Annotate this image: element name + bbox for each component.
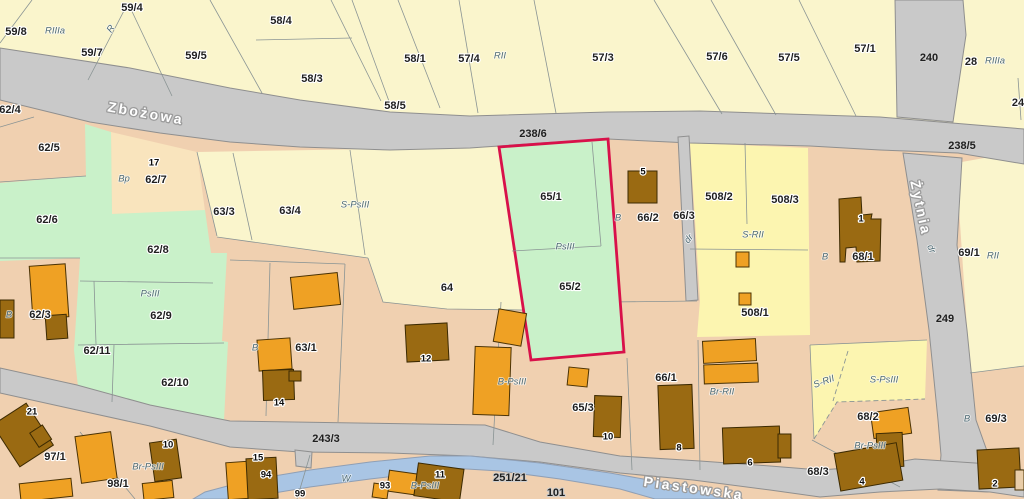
building bbox=[257, 338, 292, 371]
parcel-number: 58/3 bbox=[301, 73, 322, 85]
parcel-number: 64 bbox=[441, 282, 454, 294]
parcel-number: 62/9 bbox=[150, 310, 171, 322]
building-annex bbox=[1015, 470, 1024, 490]
building bbox=[658, 384, 694, 449]
parcel-number: 62/6 bbox=[36, 214, 57, 226]
parcel-number: 62/7 bbox=[145, 174, 166, 186]
soil-class: B bbox=[964, 414, 971, 425]
building-number: 6 bbox=[747, 458, 752, 469]
soil-class: S-PsIII bbox=[341, 200, 370, 211]
parcel-number: 24 bbox=[1012, 97, 1024, 109]
parcel-number: 98/1 bbox=[107, 478, 128, 490]
parcel-number: 62/10 bbox=[161, 377, 189, 389]
building bbox=[290, 273, 340, 310]
building-number: 99 bbox=[295, 489, 306, 499]
building bbox=[736, 252, 749, 267]
parcel-number: 63/3 bbox=[213, 206, 234, 218]
building-number: 5 bbox=[640, 167, 646, 178]
parcel-number: 66/3 bbox=[673, 210, 694, 222]
parcel-number: 57/5 bbox=[778, 52, 799, 64]
road-parcel-number: 240 bbox=[920, 52, 938, 64]
building bbox=[704, 363, 759, 384]
soil-class: W bbox=[342, 474, 352, 485]
parcel-number: 508/2 bbox=[705, 191, 733, 203]
parcel-number: 59/5 bbox=[185, 50, 206, 62]
soil-class: B bbox=[615, 213, 622, 224]
parcel-number: 66/1 bbox=[655, 372, 676, 384]
building-number: 10 bbox=[603, 432, 614, 443]
parcel-number: 68/2 bbox=[857, 411, 878, 423]
parcel-number: 62/5 bbox=[38, 142, 59, 154]
building bbox=[739, 293, 751, 305]
building-number: 21 bbox=[27, 407, 38, 418]
parcel-number: 508/3 bbox=[771, 194, 799, 206]
soil-class: B bbox=[252, 343, 259, 354]
building-number: 8 bbox=[676, 443, 681, 454]
building-number: 93 bbox=[380, 481, 391, 492]
parcel-number: 69/3 bbox=[985, 413, 1006, 425]
road-parcel-number: 238/6 bbox=[519, 128, 547, 140]
parcel-number: 68/1 bbox=[852, 251, 873, 263]
parcel-number: 59/7 bbox=[81, 47, 102, 59]
building-number: 10 bbox=[163, 440, 174, 451]
road-parcel-number: 249 bbox=[936, 313, 954, 325]
soil-class: Bp bbox=[118, 174, 130, 185]
building-number: 15 bbox=[253, 453, 264, 464]
parcel-number: 97/1 bbox=[44, 451, 65, 463]
parcel-number: 68/3 bbox=[807, 466, 828, 478]
building-number: 1 bbox=[858, 214, 864, 225]
building bbox=[142, 480, 174, 499]
soil-class: Br-PsIII bbox=[132, 462, 164, 473]
soil-class: S-RII bbox=[742, 230, 764, 241]
road-parcel-number: 243/3 bbox=[312, 433, 340, 445]
building-number: 12 bbox=[421, 354, 432, 365]
road-spur bbox=[295, 450, 312, 468]
parcel-number: 57/3 bbox=[592, 52, 613, 64]
parcel-number: 58/5 bbox=[384, 100, 405, 112]
building bbox=[778, 434, 791, 458]
parcel-number: 58/4 bbox=[270, 15, 292, 27]
road-parcel-number: 238/5 bbox=[948, 140, 976, 152]
parcel-number: 58/1 bbox=[404, 53, 425, 65]
parcel-number: 59/4 bbox=[121, 2, 143, 14]
road-parcel-number: 101 bbox=[547, 487, 565, 499]
soil-class: Br-PsIII bbox=[854, 441, 886, 452]
building-number: 11 bbox=[435, 470, 446, 481]
soil-class: Br-RII bbox=[710, 387, 735, 398]
soil-class: RII bbox=[494, 51, 507, 62]
soil-class: S-PsIII bbox=[870, 375, 899, 386]
building bbox=[75, 432, 117, 484]
building bbox=[567, 367, 589, 387]
soil-class: PsIII bbox=[555, 242, 574, 253]
parcel-number: 57/1 bbox=[854, 43, 875, 55]
building bbox=[702, 339, 756, 364]
road-parcel-number: 251/21 bbox=[493, 472, 527, 484]
building bbox=[493, 309, 526, 346]
cadastral-map: Mapa ewidencyjna działek (cadastral parc… bbox=[0, 0, 1024, 499]
soil-class: RII bbox=[987, 251, 1000, 262]
parcel-number: 69/1 bbox=[958, 247, 979, 259]
parcel-number: 57/4 bbox=[458, 53, 480, 65]
parcel-number: 508/1 bbox=[741, 307, 769, 319]
parcel-number: 65/1 bbox=[540, 191, 561, 203]
parcel-number: 66/2 bbox=[637, 212, 658, 224]
soil-class: PsIII bbox=[140, 289, 159, 300]
soil-class: B bbox=[822, 252, 829, 263]
parcel-number: 62/4 bbox=[0, 104, 22, 116]
soil-class: B-PsIII bbox=[411, 481, 440, 492]
building bbox=[977, 448, 1021, 489]
parcel-number: 62/11 bbox=[84, 345, 111, 357]
soil-class: B-PsIII bbox=[498, 377, 527, 388]
building-number: 94 bbox=[261, 470, 272, 481]
building bbox=[289, 371, 301, 381]
soil-class: B bbox=[6, 310, 13, 321]
parcel-number: 65/2 bbox=[559, 281, 580, 293]
parcel-number: 28 bbox=[965, 56, 977, 68]
parcel-number: 63/1 bbox=[295, 342, 316, 354]
soil-class: RIIIa bbox=[45, 26, 65, 37]
parcel-number: 62/8 bbox=[147, 244, 168, 256]
parcel-number: 65/3 bbox=[572, 402, 593, 414]
parcel-number: 57/6 bbox=[706, 51, 727, 63]
parcel-number: 62/3 bbox=[29, 309, 50, 321]
building-number: 17 bbox=[149, 158, 160, 169]
parcel-number: 63/4 bbox=[279, 205, 301, 217]
soil-class: RIIIa bbox=[985, 56, 1005, 67]
building-number: 2 bbox=[992, 479, 997, 490]
building-number: 4 bbox=[859, 477, 865, 488]
building-number: 14 bbox=[274, 398, 285, 409]
parcel-number: 59/8 bbox=[5, 26, 26, 38]
